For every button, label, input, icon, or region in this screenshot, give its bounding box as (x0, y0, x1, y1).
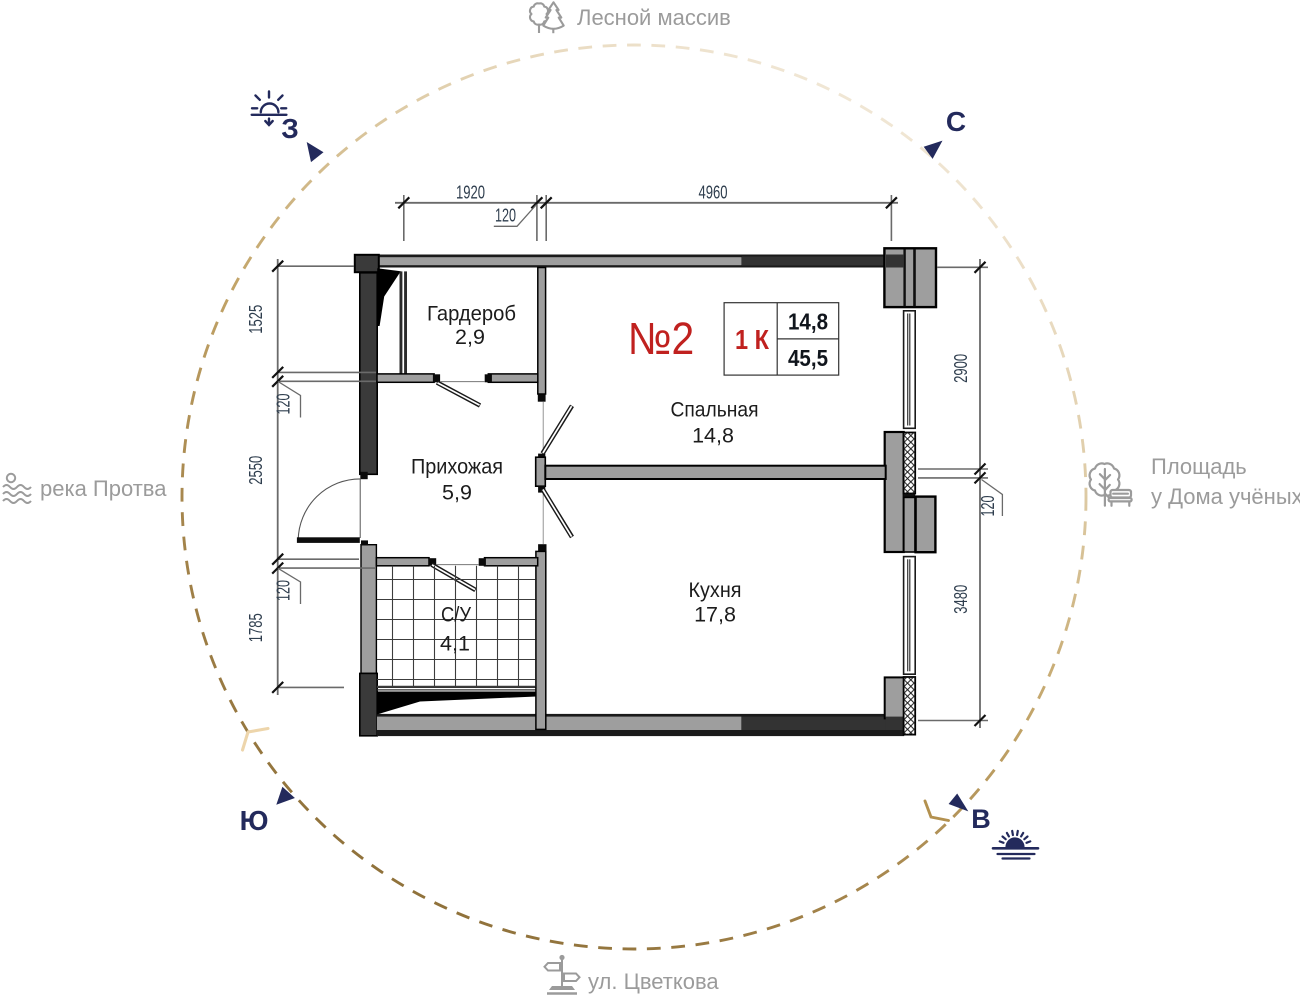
svg-text:2900: 2900 (951, 354, 971, 383)
svg-text:14,8: 14,8 (692, 424, 734, 448)
svg-text:З: З (281, 113, 299, 144)
svg-text:Прихожая: Прихожая (411, 455, 503, 479)
svg-text:2550: 2550 (246, 456, 266, 485)
svg-text:1920: 1920 (456, 183, 485, 203)
svg-text:120: 120 (274, 580, 294, 601)
svg-text:120: 120 (495, 206, 516, 226)
svg-text:С: С (946, 106, 966, 137)
svg-text:Площадь: Площадь (1151, 454, 1247, 479)
svg-text:Спальная: Спальная (671, 398, 759, 422)
svg-text:Ю: Ю (240, 805, 269, 836)
svg-text:120: 120 (274, 394, 294, 415)
svg-text:С/У: С/У (441, 603, 471, 627)
svg-text:река Протва: река Протва (40, 476, 167, 501)
svg-text:ул. Цветкова: ул. Цветкова (588, 969, 719, 994)
svg-text:1785: 1785 (246, 613, 266, 642)
svg-text:1525: 1525 (246, 305, 266, 334)
svg-text:4,1: 4,1 (440, 632, 470, 656)
svg-text:3480: 3480 (951, 585, 971, 614)
svg-text:№2: №2 (628, 313, 695, 364)
svg-text:5,9: 5,9 (442, 481, 472, 505)
svg-text:2,9: 2,9 (455, 325, 485, 349)
svg-text:4960: 4960 (699, 183, 728, 203)
svg-text:1 К: 1 К (735, 324, 769, 355)
svg-text:120: 120 (978, 496, 998, 517)
svg-text:45,5: 45,5 (788, 345, 828, 371)
svg-text:17,8: 17,8 (694, 603, 736, 627)
svg-text:14,8: 14,8 (788, 309, 828, 335)
svg-text:В: В (971, 804, 991, 834)
svg-text:Лесной массив: Лесной массив (577, 5, 731, 30)
svg-text:у Дома учёных: у Дома учёных (1151, 484, 1300, 509)
svg-text:Кухня: Кухня (689, 578, 742, 602)
svg-text:Гардероб: Гардероб (427, 302, 516, 326)
